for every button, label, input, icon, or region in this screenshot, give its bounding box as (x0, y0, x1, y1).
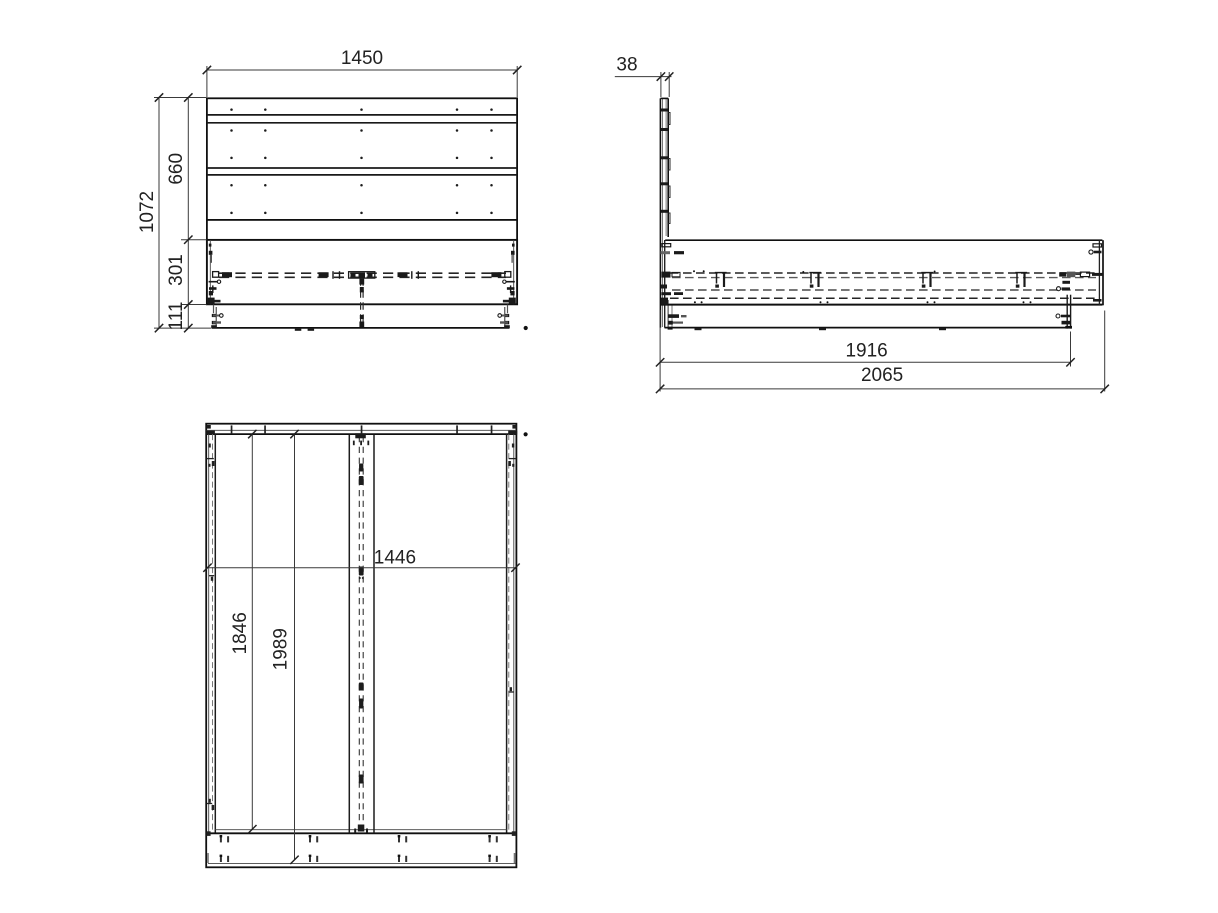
svg-text:1916: 1916 (845, 341, 887, 362)
svg-text:1072: 1072 (137, 191, 158, 233)
svg-text:1989: 1989 (271, 628, 292, 670)
svg-text:1846: 1846 (230, 612, 251, 654)
svg-text:1450: 1450 (341, 48, 383, 69)
svg-text:660: 660 (166, 153, 187, 185)
svg-text:2065: 2065 (861, 365, 903, 386)
svg-text:111: 111 (166, 302, 187, 331)
svg-text:38: 38 (616, 55, 637, 76)
svg-text:301: 301 (166, 254, 187, 286)
svg-text:1446: 1446 (374, 548, 416, 569)
